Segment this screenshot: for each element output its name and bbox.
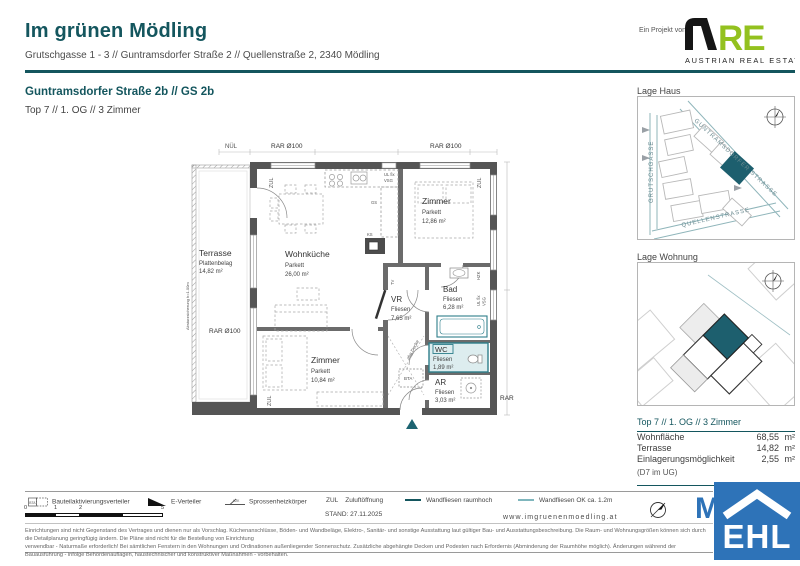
svg-text:3,03 m²: 3,03 m²: [435, 398, 455, 404]
svg-text:Zimmer: Zimmer: [311, 355, 340, 365]
svg-text:KS: KS: [367, 232, 373, 237]
info-row-wohnflaeche: Wohnfläche 68,55 m²: [637, 432, 795, 443]
dimension-chain-right: [504, 162, 510, 415]
svg-text:UL fix: UL fix: [476, 295, 481, 306]
svg-text:Absturzsicherung h=1.00m: Absturzsicherung h=1.00m: [185, 282, 190, 330]
legend-label: Sprossenheizkörper: [249, 499, 307, 506]
svg-text:RAR Ø100: RAR Ø100: [430, 143, 462, 150]
svg-text:ZUL: ZUL: [269, 178, 275, 188]
site-plan: GUNTRAMSDORFER STRASSE GRUTSCHGASSE QUEL…: [638, 97, 794, 239]
info-unit: m²: [779, 432, 795, 443]
legend-zul: ZULZuluftöffnung: [326, 497, 383, 504]
disclaimer-line-1: Einrichtungen sind nicht Gegenstand des …: [25, 527, 711, 543]
floorplan: Terrasse Plattenbelag 14,82 m² Wohnküche…: [185, 140, 515, 441]
entrance-arrow: [406, 419, 418, 429]
unit-title: Guntramsdorfer Straße 2b // GS 2b: [25, 86, 214, 98]
unit-info-table: Wohnfläche 68,55 m² Terrasse 14,82 m² Ei…: [637, 432, 795, 486]
scale-tick: 5: [161, 505, 164, 511]
svg-text:RAR: RAR: [500, 395, 514, 402]
info-label: Einlagerungsmöglichkeit: [637, 454, 749, 465]
svg-text:Plattenbelag: Plattenbelag: [199, 261, 232, 267]
are-logo: RE AUSTRIAN REAL ESTATE: [683, 16, 795, 73]
disclaimer-line-2: verwendbar - Naturmaße erforderlich! Bei…: [25, 543, 711, 559]
legend-label: Wandfliesen raumhoch: [426, 497, 492, 504]
svg-text:10,84 m²: 10,84 m²: [311, 378, 335, 384]
lage-wohnung-map: [637, 262, 795, 406]
scale-segment: [122, 513, 163, 517]
svg-text:1,89 m²: 1,89 m²: [433, 365, 453, 371]
are-caption: AUSTRIAN REAL ESTATE: [685, 56, 795, 65]
project-address: Grutschgasse 1 - 3 // Guntramsdorfer Str…: [25, 50, 380, 61]
svg-text:abg.Decke: abg.Decke: [405, 339, 420, 361]
header-divider: [25, 70, 795, 73]
svg-text:Fliesen: Fliesen: [433, 357, 452, 363]
svg-text:RAR Ø100: RAR Ø100: [271, 143, 303, 150]
svg-text:12,86 m²: 12,86 m²: [422, 219, 446, 225]
info-label: Terrasse: [637, 443, 749, 454]
room-bad: Bad Fliesen 6,28 m²: [443, 285, 463, 311]
zul-abbrev: ZUL: [326, 497, 338, 504]
svg-text:NÜL: NÜL: [225, 143, 238, 150]
suspended-ceiling-lines: [388, 336, 424, 395]
are-a-glyph: [685, 18, 717, 50]
svg-text:26,00 m²: 26,00 m²: [285, 272, 309, 278]
tile-partial-height-swatch: [518, 499, 534, 501]
disclaimer: Einrichtungen sind nicht Gegenstand des …: [25, 527, 711, 559]
compass-icon: [762, 270, 784, 292]
footer-divider-top: [25, 491, 713, 492]
unit-position-plan: [638, 263, 794, 405]
legend-label: Zuluftöffnung: [345, 497, 383, 504]
svg-text:VR: VR: [391, 295, 402, 304]
svg-text:AR: AR: [435, 378, 446, 387]
are-logo-graphic: RE AUSTRIAN REAL ESTATE: [683, 16, 795, 68]
room-terrasse: Terrasse Plattenbelag 14,82 m²: [199, 248, 232, 275]
legend-wandfliesen-raumhoch: Wandfliesen raumhoch: [405, 497, 492, 504]
legend-wandfliesen-ok: Wandfliesen OK ca. 1.2m: [518, 497, 612, 504]
svg-text:Parkett: Parkett: [422, 210, 441, 216]
svg-text:HZK: HZK: [476, 271, 481, 280]
legend-label: Wandfliesen OK ca. 1.2m: [539, 497, 612, 504]
svg-text:Fliesen: Fliesen: [435, 390, 454, 396]
info-value: 68,55: [749, 432, 779, 443]
scale-bar: 0 1 2 5: [25, 505, 175, 521]
info-value: 14,82: [749, 443, 779, 454]
svg-text:Fliesen: Fliesen: [391, 307, 410, 313]
info-note: (D7 im UG): [637, 468, 795, 477]
unit-cluster: [655, 295, 770, 405]
floorplan-drawing: Terrasse Plattenbelag 14,82 m² Wohnküche…: [185, 140, 515, 436]
svg-text:6,28 m²: 6,28 m²: [443, 305, 463, 311]
svg-text:VSG: VSG: [482, 297, 487, 306]
info-label: Wohnfläche: [637, 432, 749, 443]
svg-text:Wohnküche: Wohnküche: [285, 249, 330, 259]
terrace-structure: [192, 165, 257, 415]
info-unit: m²: [779, 454, 795, 465]
ehl-text: EHL: [723, 518, 792, 555]
roof-icon: [725, 494, 789, 516]
street-grutschgasse: GRUTSCHGASSE: [649, 141, 655, 203]
unit-info-title: Top 7 // 1. OG // 3 Zimmer: [637, 417, 795, 432]
svg-text:14,82 m²: 14,82 m²: [199, 269, 223, 275]
compass-icon: [764, 106, 786, 128]
radiator-icon: HZK: [225, 497, 245, 507]
svg-text:Fliesen: Fliesen: [443, 297, 462, 303]
info-value: 2,55: [749, 454, 779, 465]
scale-tick: 2: [79, 505, 82, 511]
ar-washer: [461, 378, 481, 398]
info-unit: m²: [779, 443, 795, 454]
footer-divider-mid: [25, 523, 713, 524]
svg-text:Parkett: Parkett: [285, 263, 304, 269]
plan-sheet: Im grünen Mödling Grutschgasse 1 - 3 // …: [0, 0, 800, 566]
svg-text:Zimmer: Zimmer: [422, 196, 451, 206]
svg-text:ZUL: ZUL: [477, 178, 483, 188]
legend-label: E-Verteiler: [171, 499, 201, 506]
svg-text:Parkett: Parkett: [311, 369, 330, 375]
lage-wohnung-title: Lage Wohnung: [637, 252, 698, 262]
website-link[interactable]: www.imgruenenmoedling.at: [503, 514, 618, 521]
info-row-einlagerung: Einlagerungsmöglichkeit 2,55 m²: [637, 454, 795, 465]
kitchen-appliances: [329, 172, 367, 186]
ehl-logo: EHL: [714, 482, 800, 560]
lage-haus-map: GUNTRAMSDORFER STRASSE GRUTSCHGASSE QUEL…: [637, 96, 795, 240]
room-vr: VR Fliesen 7,65 m²: [391, 295, 411, 322]
svg-text:7,65 m²: 7,65 m²: [391, 316, 411, 322]
svg-text:ZUL: ZUL: [267, 396, 273, 406]
unit-subtitle: Top 7 // 1. OG // 3 Zimmer: [25, 105, 141, 116]
svg-text:HZK: HZK: [233, 499, 240, 503]
info-row-terrasse: Terrasse 14,82 m²: [637, 443, 795, 454]
ehl-logo-graphic: EHL: [714, 482, 800, 560]
svg-text:UL fix: UL fix: [384, 172, 395, 177]
svg-text:Terrasse: Terrasse: [199, 248, 232, 258]
scale-segment: [80, 513, 122, 517]
lage-haus-title: Lage Haus: [637, 86, 681, 96]
svg-text:TV: TV: [390, 279, 395, 285]
plan-date: STAND: 27.11.2025: [325, 511, 382, 518]
tile-full-height-swatch: [405, 499, 421, 501]
room-zimmer-bottom: Zimmer Parkett 10,84 m²: [311, 355, 340, 384]
legend-heizkoerper: HZK Sprossenheizkörper: [225, 497, 307, 507]
svg-text:WC: WC: [435, 345, 448, 354]
room-zimmer-top: Zimmer Parkett 12,86 m²: [422, 196, 451, 225]
page-title: Im grünen Mödling: [25, 20, 207, 43]
scale-tick: 0: [24, 505, 27, 511]
north-compass-icon: [648, 500, 668, 520]
svg-text:Bad: Bad: [443, 285, 457, 294]
project-by-label: Ein Projekt von: [639, 27, 686, 34]
door-leaf: [375, 290, 387, 319]
scale-tick: 1: [54, 505, 57, 511]
svg-text:VSG: VSG: [384, 178, 393, 183]
svg-text:GS: GS: [371, 200, 377, 205]
room-wohnkueche: Wohnküche Parkett 26,00 m²: [285, 249, 330, 278]
shaft-inner: [369, 242, 378, 250]
svg-text:RAR Ø100: RAR Ø100: [209, 328, 241, 335]
room-ar: AR Fliesen 3,03 m²: [435, 378, 455, 404]
scale-segment: [55, 513, 80, 517]
svg-text:BTA: BTA: [404, 376, 412, 381]
room-labels: Terrasse Plattenbelag 14,82 m² Wohnküche…: [199, 196, 463, 404]
are-re-text: RE: [718, 19, 765, 58]
scale-segment: [25, 513, 55, 517]
